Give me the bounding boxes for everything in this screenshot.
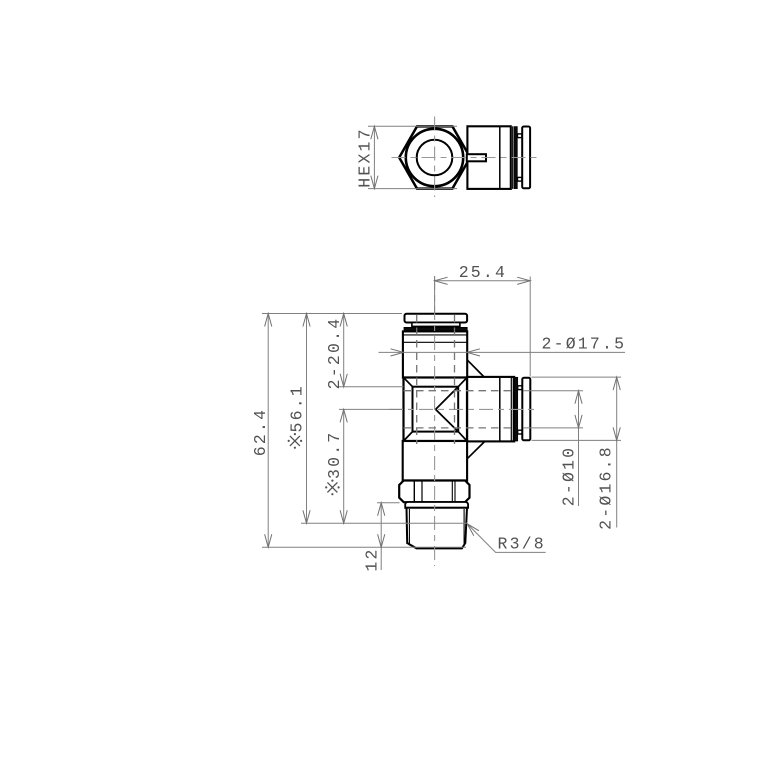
- svg-text:62.4: 62.4: [251, 408, 270, 456]
- svg-text:2-Ø10: 2-Ø10: [560, 446, 579, 507]
- svg-text:2-20.4: 2-20.4: [325, 317, 344, 390]
- svg-text:12: 12: [363, 547, 382, 571]
- svg-text:2-Ø16.8: 2-Ø16.8: [597, 445, 616, 530]
- svg-text:56.1: 56.1: [288, 384, 307, 432]
- svg-text:HEX17: HEX17: [356, 127, 375, 188]
- svg-text:R3/8: R3/8: [498, 535, 546, 554]
- svg-text:30.7: 30.7: [325, 431, 344, 479]
- svg-text:25.4: 25.4: [459, 263, 507, 282]
- svg-text:2-Ø17.5: 2-Ø17.5: [542, 335, 627, 354]
